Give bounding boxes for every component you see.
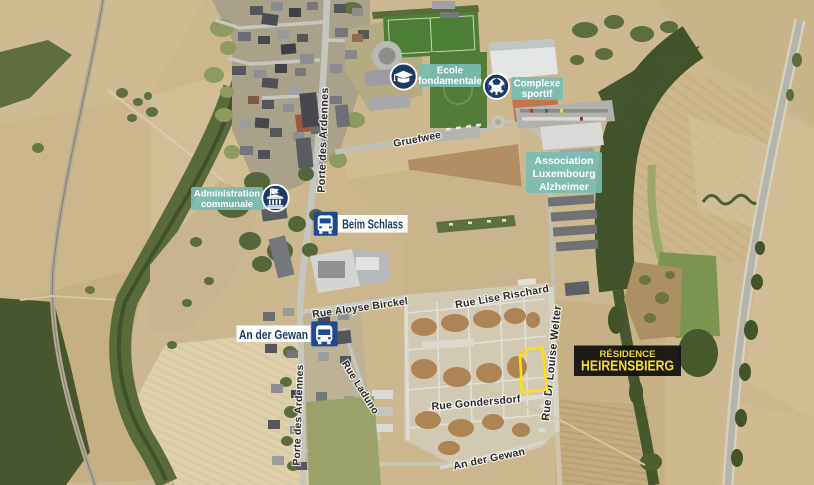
svg-text:HEIRENSBIERG: HEIRENSBIERG [581, 359, 674, 375]
svg-text:Beim Schlass: Beim Schlass [342, 218, 403, 232]
svg-text:communale: communale [201, 198, 253, 209]
svg-text:sportif: sportif [522, 89, 553, 100]
svg-text:Association: Association [535, 156, 594, 167]
svg-text:fondamentale: fondamentale [418, 76, 482, 87]
svg-text:An der Gewan: An der Gewan [239, 328, 308, 342]
svg-text:Luxembourg: Luxembourg [533, 169, 596, 180]
svg-text:Alzheimer: Alzheimer [539, 182, 589, 193]
svg-text:Administration: Administration [194, 188, 260, 199]
svg-text:Ecole: Ecole [437, 66, 464, 77]
svg-text:Complexe: Complexe [514, 79, 561, 90]
